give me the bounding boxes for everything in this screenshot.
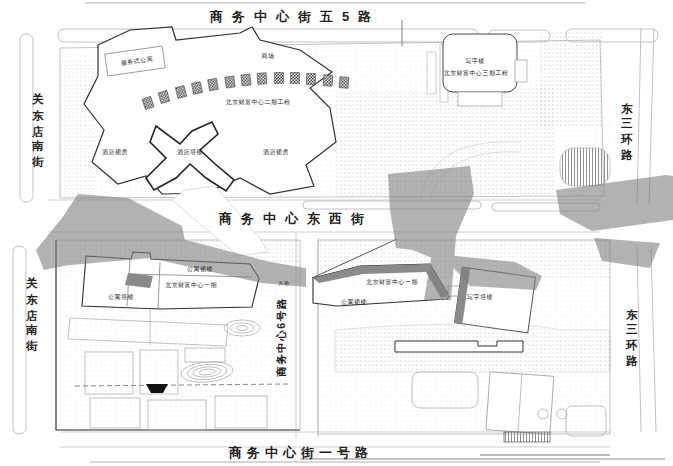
site-plan-linework	[0, 0, 673, 466]
se-office-tower-label: 写字塔楼	[467, 294, 493, 300]
sw-apartment-podium-label: 公寓裙楼	[187, 266, 213, 272]
sw-phase1-label: 北京财富中心一期	[165, 282, 217, 288]
footbridge-label: 天桥	[278, 281, 290, 287]
site-plan: 商务中心街五5路 商务中心东西街 商务中心街一号路 关东店南街 关东店南街 东三…	[0, 0, 673, 466]
street-right-upper-label: 东三环路	[620, 92, 632, 156]
street-left-lower-label: 关东店南街	[25, 267, 37, 347]
hotel-tower-label: 酒店塔楼	[177, 149, 203, 155]
street-bottom-label: 商务中心街一号路	[229, 446, 373, 459]
phase2-label: 北京财富中心二期工程	[226, 99, 291, 105]
phase3-label: 北京财富中心三期工程	[444, 70, 509, 76]
mall-label: 商场	[262, 53, 275, 59]
se-apartment-podium-label: 公寓裙楼	[341, 299, 367, 305]
street-right-lower-label: 东三环路	[625, 298, 637, 362]
street-top-label: 商务中心街五5路	[210, 10, 380, 23]
sw-apartment-tower-label: 公寓塔楼	[108, 294, 134, 300]
hotel-podium-left-label: 酒店裙房	[102, 149, 128, 155]
street-middle-label: 商务中心东西街	[219, 212, 373, 225]
street-left-upper-label: 关东店南街	[31, 83, 43, 163]
office-label: 写字楼	[465, 58, 485, 64]
se-phase1-label: 北京财富中心一期	[366, 279, 418, 285]
street-center-vertical-label: 商务中心6号路	[276, 297, 287, 376]
hotel-podium-right-label: 酒店裙房	[263, 149, 289, 155]
